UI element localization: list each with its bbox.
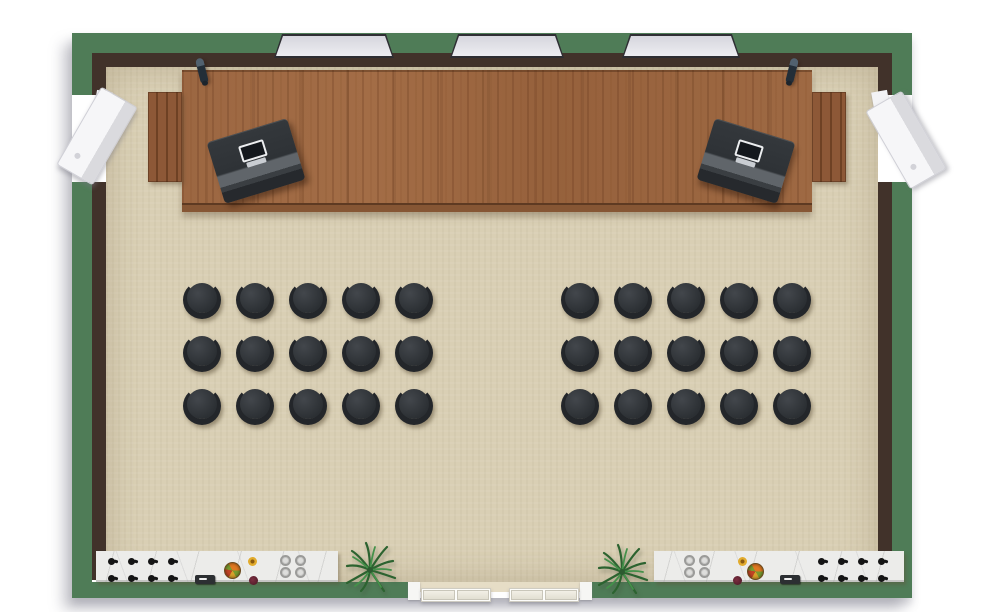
floor-plan-scene	[0, 0, 1000, 612]
chair-seat	[724, 336, 754, 366]
stove-knob	[108, 558, 115, 565]
chair-seat	[399, 336, 429, 366]
burner	[699, 567, 710, 578]
chair	[289, 281, 327, 319]
chair	[720, 281, 758, 319]
chair	[183, 387, 221, 425]
wall-trim-left-lower	[92, 182, 106, 580]
stove-knob	[858, 575, 865, 582]
chair	[289, 334, 327, 372]
chair-seat	[240, 283, 270, 313]
stove-knob	[128, 575, 135, 582]
stove-knob	[168, 558, 175, 565]
chair	[720, 334, 758, 372]
chair-seat	[346, 389, 376, 419]
chair-seat	[724, 283, 754, 313]
chair	[395, 387, 433, 425]
laptop-right	[733, 139, 764, 168]
chair	[773, 387, 811, 425]
door-jamb-right	[580, 582, 592, 600]
chair-seat	[777, 389, 807, 419]
chair	[236, 281, 274, 319]
door-jamb-left	[408, 582, 420, 600]
wall-left-lower	[72, 182, 92, 598]
wall-trim-right-upper	[878, 53, 892, 95]
stove-knob	[108, 575, 115, 582]
palm-plant-icon	[592, 540, 652, 600]
chair-seat	[777, 336, 807, 366]
window-glass	[624, 36, 738, 56]
burner	[699, 555, 710, 566]
chair	[289, 387, 327, 425]
chair-seat	[565, 336, 595, 366]
window-row	[72, 34, 912, 58]
stove-knob	[838, 575, 845, 582]
chair	[614, 281, 652, 319]
stove-knob	[128, 558, 135, 565]
chair-seat	[671, 283, 701, 313]
stove-knob	[148, 558, 155, 565]
chair	[667, 334, 705, 372]
counter-left	[96, 551, 338, 582]
stove-knob	[818, 575, 825, 582]
window-glass	[452, 36, 562, 56]
door-leaf	[423, 590, 455, 600]
burner	[295, 567, 306, 578]
knob-grid	[818, 558, 885, 582]
chair-seat	[724, 389, 754, 419]
door-leaf	[511, 590, 543, 600]
chair-seat	[399, 389, 429, 419]
chair-seat	[671, 389, 701, 419]
entry-door-right	[509, 588, 579, 602]
window-glass	[276, 36, 392, 56]
chair	[183, 334, 221, 372]
chair-group-right	[561, 281, 811, 425]
flower	[248, 557, 257, 566]
chair	[773, 334, 811, 372]
chair	[667, 387, 705, 425]
chair-seat	[777, 283, 807, 313]
burner	[280, 567, 291, 578]
stage-steps-left	[148, 92, 182, 182]
chair-seat	[187, 283, 217, 313]
chair-seat	[293, 389, 323, 419]
stove-knob	[838, 558, 845, 565]
chair-seat	[618, 283, 648, 313]
burner	[280, 555, 291, 566]
window	[622, 34, 740, 58]
chair-seat	[565, 283, 595, 313]
building	[72, 33, 912, 598]
stove-knob	[878, 558, 885, 565]
burner-grid	[684, 555, 710, 578]
burner	[684, 555, 695, 566]
window	[450, 34, 564, 58]
window	[274, 34, 394, 58]
fruit-bowl	[747, 563, 764, 580]
chair	[183, 281, 221, 319]
chair	[773, 281, 811, 319]
chair-seat	[565, 389, 595, 419]
appliance	[195, 575, 215, 584]
appliance	[780, 575, 800, 584]
chair-seat	[618, 336, 648, 366]
burner-grid	[280, 555, 306, 578]
wall-right-lower	[892, 182, 912, 598]
sauce-bowl	[733, 576, 742, 585]
chair-group-left	[183, 281, 433, 425]
laptop-left	[238, 139, 269, 168]
chair-seat	[240, 389, 270, 419]
chair-seat	[187, 389, 217, 419]
door-leaf	[457, 590, 489, 600]
chair-seat	[399, 283, 429, 313]
chair	[236, 334, 274, 372]
chair	[342, 387, 380, 425]
door-leaf	[545, 590, 577, 600]
chair	[614, 334, 652, 372]
flower	[738, 557, 747, 566]
palm-plant-icon	[340, 538, 400, 598]
burner	[295, 555, 306, 566]
chair	[342, 281, 380, 319]
knob-grid	[108, 558, 175, 582]
chair	[395, 281, 433, 319]
chair-seat	[671, 336, 701, 366]
stove-knob	[818, 558, 825, 565]
chair	[342, 334, 380, 372]
chair-seat	[187, 336, 217, 366]
chair-seat	[293, 283, 323, 313]
counter-right	[654, 551, 904, 582]
chair	[561, 334, 599, 372]
stage-front-edge	[182, 203, 812, 212]
potted-plant-right	[592, 540, 652, 600]
burner	[684, 567, 695, 578]
stove-knob	[858, 558, 865, 565]
stove-knob	[168, 575, 175, 582]
chair	[236, 387, 274, 425]
chair	[561, 387, 599, 425]
wall-trim-right-lower	[878, 182, 892, 580]
chair	[395, 334, 433, 372]
fruit-bowl	[224, 562, 241, 579]
entry-door-left	[421, 588, 491, 602]
stove-knob	[878, 575, 885, 582]
potted-plant-left	[340, 538, 400, 598]
stove-knob	[148, 575, 155, 582]
chair-seat	[240, 336, 270, 366]
chair	[614, 387, 652, 425]
chair-seat	[346, 283, 376, 313]
chair	[720, 387, 758, 425]
sauce-bowl	[249, 576, 258, 585]
chair-seat	[346, 336, 376, 366]
chair	[667, 281, 705, 319]
stage-steps-right	[812, 92, 846, 182]
chair	[561, 281, 599, 319]
chair-seat	[293, 336, 323, 366]
chair-seat	[618, 389, 648, 419]
